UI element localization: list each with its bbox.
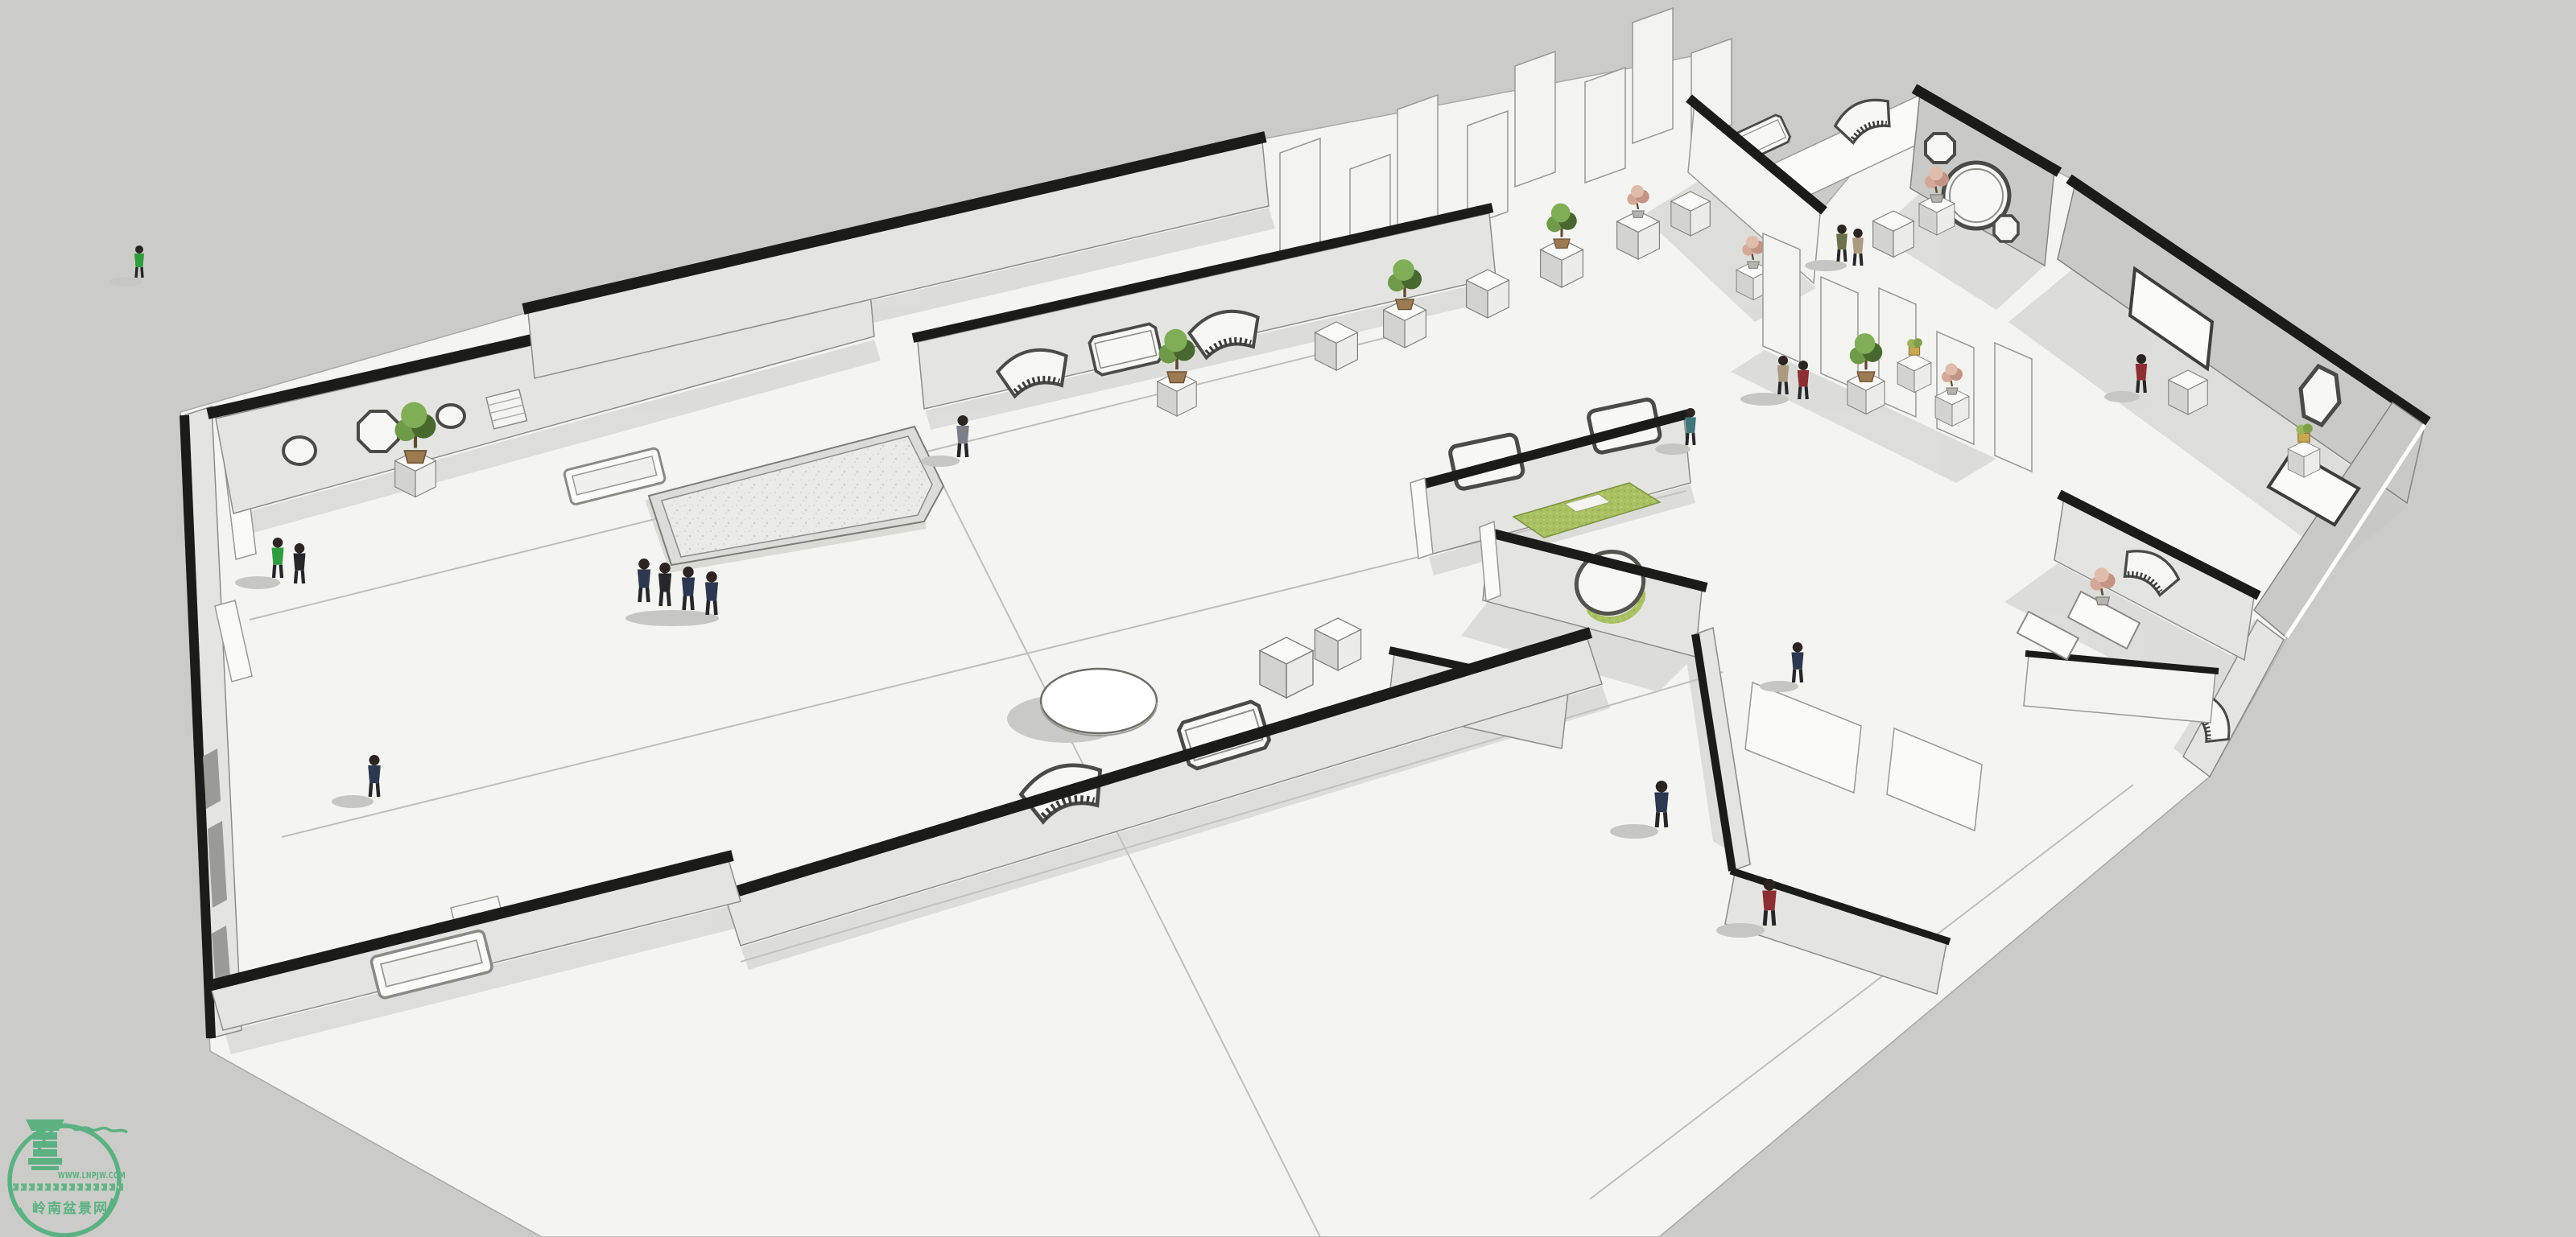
octagon-window [1994,216,2018,241]
circle-window [437,405,464,427]
watermark-url: WWW.LNPJW.COM [58,1171,126,1181]
exhibition-hall-rendering: WWW.LNPJW.COM 岭南盆景网 [0,0,2576,1237]
circle-window [283,437,316,464]
octagon-window [358,411,398,452]
disc-top [1041,669,1157,733]
screenshot-canvas: WWW.LNPJW.COM 岭南盆景网 [0,0,2576,1237]
watermark-site-name: 岭南盆景网 [32,1200,109,1217]
octagon-window [1926,134,1955,163]
